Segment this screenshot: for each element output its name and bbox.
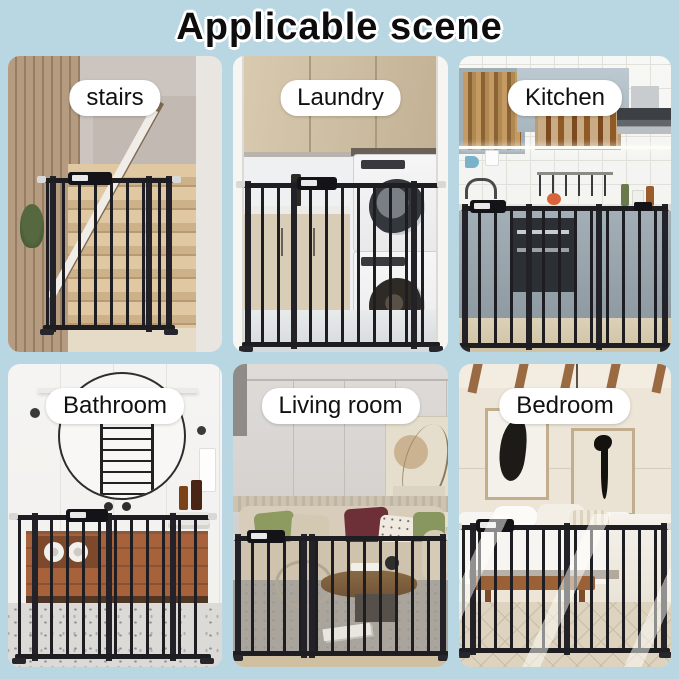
gate-post [462,204,468,350]
pressure-mount-knob [208,513,217,520]
room-label-pill: Bathroom [46,388,184,424]
range-hood [617,108,671,134]
gate-foot [164,329,178,335]
door-frame-left [233,56,244,352]
gate-foot [438,655,448,661]
ceiling-line [233,379,448,381]
room-label-pill: Laundry [280,80,401,116]
safety-gate [462,525,667,653]
gate-latch-handle [66,509,108,522]
towel-ladder-reflection [100,416,154,496]
panel-bedroom: Bedroom [459,364,671,667]
gate-foot [12,658,26,664]
pressure-mount-knob [667,523,671,530]
gate-bottom-rail [242,342,440,347]
safety-gate [462,206,668,348]
gate-latch-handle [476,519,514,532]
gate-post [291,181,297,349]
gate-foot [459,652,470,658]
gate-latch-handle [68,172,112,185]
gate-latch-handle [470,200,506,213]
wall-corner-shadow [233,364,247,436]
safety-gate [18,515,208,659]
mug [485,150,499,166]
gate-top-rail [242,183,440,188]
abstract-art-frame [571,428,635,516]
gate-post [662,204,668,350]
gate-bars [46,178,172,330]
safety-gate [245,183,437,347]
gate-post [170,513,176,661]
gate-foot [233,655,243,661]
gate-post [661,523,667,655]
panel-laundry: Laundry [233,56,448,352]
room-label-pill: Bedroom [499,388,630,424]
room-label-pill: Living room [261,388,419,424]
gate-foot [660,347,671,352]
page-title: Applicable scene [0,0,679,54]
gate-foot [459,347,470,352]
gate-bottom-rail [43,325,175,330]
gate-post [411,181,417,349]
plant [20,204,44,248]
wall-hook [30,408,40,418]
gate-post [526,204,532,350]
pressure-mount-knob [236,181,245,188]
panel-kitchen: Kitchen [459,56,671,352]
gate-bars [245,183,437,347]
gate-bottom-rail [15,654,211,659]
gate-bars [235,536,446,656]
scene-grid: stairs Laundry [0,54,679,667]
gate-latch-handle [297,177,337,190]
gate-bottom-rail [459,343,671,348]
wall-hook [197,426,206,435]
gate-foot [200,658,214,664]
room-label-pill: Kitchen [508,80,622,116]
under-cabinet-light [459,146,671,149]
door-frame-right [436,56,448,352]
oil-bottle [621,184,629,206]
gate-clamp [634,202,652,211]
gate-post [166,176,172,332]
hood-duct [631,86,659,108]
safety-gate [46,178,172,330]
gate-bars [462,206,668,348]
faucet [465,178,497,199]
gate-post [106,513,112,661]
pressure-mount-knob [233,534,235,541]
gate-foot [659,652,671,658]
soap-bottle [191,480,202,510]
panel-living-room: Living room [233,364,448,667]
gate-post [470,523,476,655]
gate-top-rail [15,515,211,520]
pressure-mount-knob [172,176,181,183]
tomato [547,193,561,205]
gate-post [146,176,152,332]
pressure-mount-knob [459,523,462,530]
panel-stairs: stairs [8,56,222,352]
mug [465,156,479,168]
safety-gate [235,536,446,656]
pressure-mount-knob [9,513,18,520]
gate-bottom-rail [233,651,448,656]
gate-foot [429,346,443,352]
panel-bathroom: Bathroom [8,364,222,667]
gate-post [596,204,602,350]
gate-post [440,534,446,658]
faucet-knob [122,502,131,511]
gate-post [32,513,38,661]
right-wall [196,56,222,352]
gate-foot [239,346,253,352]
gate-foot [40,329,54,335]
gate-bottom-rail [459,648,670,653]
gate-post [235,534,241,658]
pressure-mount-knob [668,204,671,211]
soap-bottle [179,486,188,510]
gate-latch-handle [247,530,285,543]
gate-post [50,176,56,332]
gate-post [245,181,251,349]
gate-post [309,534,315,658]
pressure-mount-knob [37,176,46,183]
pressure-mount-knob [459,204,462,211]
pressure-mount-knob [437,181,446,188]
gate-post [301,534,307,658]
pressure-mount-knob [446,534,448,541]
room-label-pill: stairs [69,80,160,116]
gate-post [564,523,570,655]
gate-bars [18,515,208,659]
